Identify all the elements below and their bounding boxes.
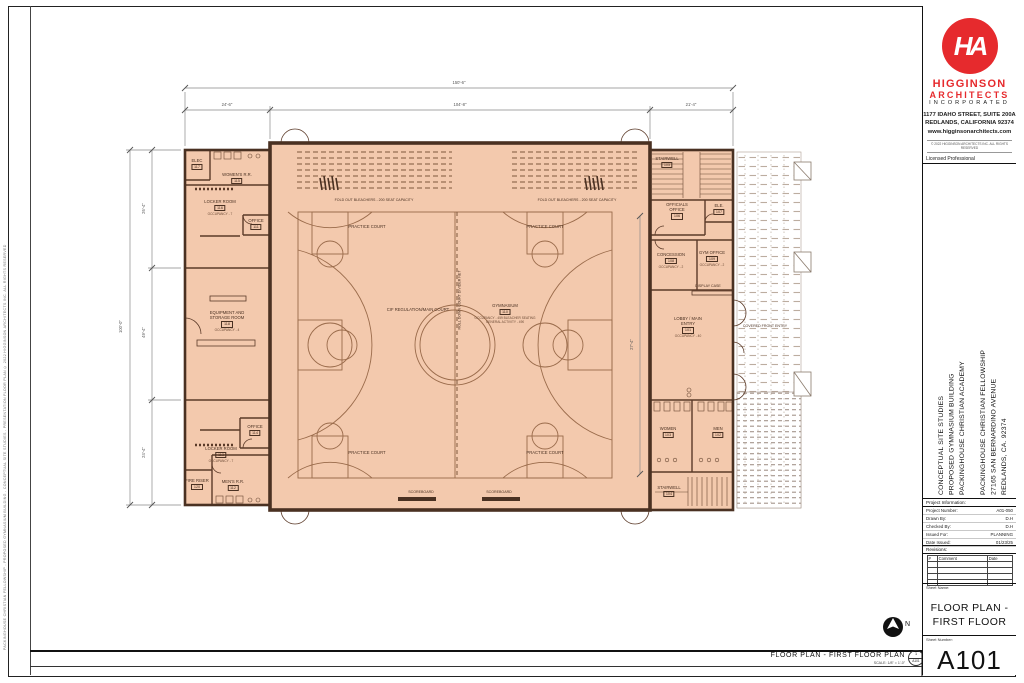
firm-name-2: ARCHITECTS	[923, 91, 1016, 101]
licensed-professional: Licensed Professional	[923, 154, 1016, 164]
info-row-project-number: Project Number:A01-050	[923, 507, 1016, 515]
sheet-number: A101	[923, 645, 1016, 676]
sheet-border	[8, 6, 1016, 677]
sheet-number-label: Sheet Number:	[923, 636, 1016, 642]
project-client-title: PACKINGHOUSE CHRISTIAN FELLOWSHIP 27165 …	[979, 335, 1011, 495]
firm-name-1: HIGGINSON	[923, 79, 1016, 91]
info-row-issued-for: Issued For:PLANNING	[923, 531, 1016, 539]
info-row-drawn-by: Drawn By:D.H	[923, 515, 1016, 523]
sheet-name: FLOOR PLAN - FIRST FLOOR	[923, 602, 1016, 629]
project-information-header: Project Information:	[923, 499, 1016, 507]
firm-logo-block: HA HIGGINSON ARCHITECTS INCORPORATED 117…	[923, 6, 1016, 172]
footer-scale: SCALE: 1/8" = 1'-0"	[700, 661, 905, 665]
firm-monogram: HA	[954, 31, 986, 62]
firm-address-2: REDLANDS, CALIFORNIA 92374	[923, 120, 1016, 128]
sheet-number-section: Sheet Number: A101	[923, 635, 1016, 675]
north-label: N	[905, 621, 910, 628]
ha-logo-icon: HA	[942, 18, 998, 74]
title-block: HA HIGGINSON ARCHITECTS INCORPORATED 117…	[922, 6, 1016, 675]
sheet-name-label: Sheet Name:	[923, 584, 1016, 590]
footer-rule-bottom	[30, 666, 922, 667]
revisions-table: # Comment Date	[927, 555, 1013, 586]
detail-number: 1	[909, 653, 923, 659]
left-margin-line	[30, 6, 31, 675]
sheet-name-section: Sheet Name: FLOOR PLAN - FIRST FLOOR	[923, 583, 1016, 635]
drawing-sheet: ELEC117 WOMEN'S R.R.115 LOCKER ROOM116OC…	[0, 0, 1024, 683]
firm-name-3: INCORPORATED	[923, 100, 1016, 108]
project-information-section: Project Information: Project Number:A01-…	[923, 498, 1016, 545]
firm-copyright: © 2022 HIGGINSON ARCHITECTS INC. ALL RIG…	[927, 140, 1012, 153]
detail-sheet: A101	[909, 660, 923, 663]
firm-address-1: 1177 IDAHO STREET, SUITE 200A	[923, 112, 1016, 120]
firm-website: www.higginsonarchitects.com	[923, 128, 1016, 137]
info-row-checked-by: Checked By:D.H	[923, 523, 1016, 531]
title-block-spacer	[923, 172, 1016, 335]
revisions-header: Revisions:	[923, 546, 1016, 554]
project-study-title: CONCEPTUAL SITE STUDIES PROPOSED GYMNASI…	[937, 335, 969, 495]
project-title-block: CONCEPTUAL SITE STUDIES PROPOSED GYMNASI…	[923, 335, 1016, 498]
footer-drawing-title: FLOOR PLAN - FIRST FLOOR PLAN	[640, 652, 905, 659]
revisions-section: Revisions: # Comment Date	[923, 545, 1016, 583]
margin-copyright-note: PACKINGHOUSE CHRISTIAN FELLOWSHIP - PROP…	[3, 20, 7, 650]
